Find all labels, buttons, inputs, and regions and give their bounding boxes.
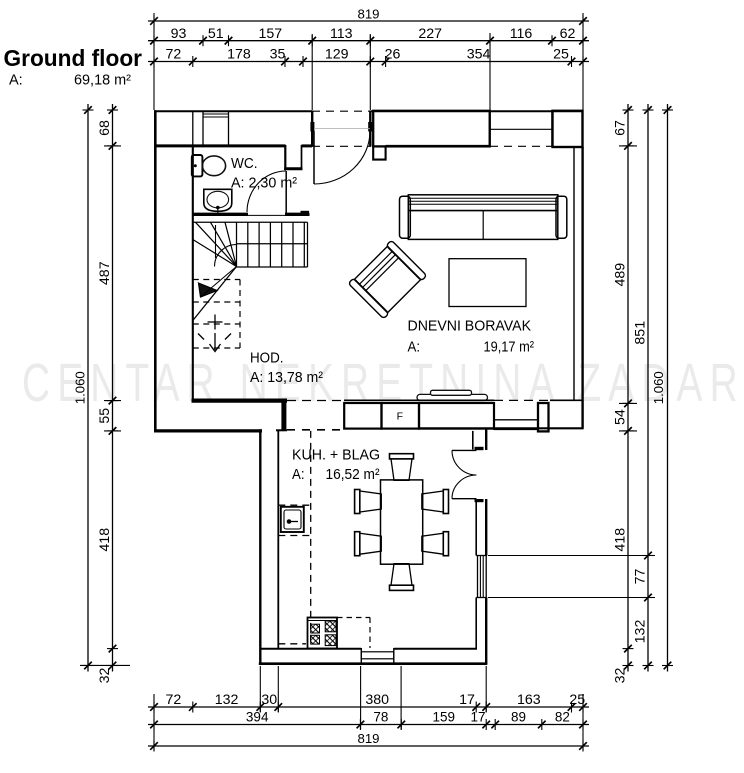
svg-text:67: 67 <box>613 120 629 136</box>
svg-text:KUH. + BLAG: KUH. + BLAG <box>292 447 380 464</box>
svg-text:DNEVNI BORAVAK: DNEVNI BORAVAK <box>408 318 532 335</box>
svg-text:819: 819 <box>357 731 379 746</box>
svg-text:77: 77 <box>633 569 649 585</box>
svg-text:WC.: WC. <box>231 155 258 172</box>
svg-text:17: 17 <box>470 710 485 725</box>
svg-text:1.060: 1.060 <box>73 371 88 404</box>
svg-text:72: 72 <box>166 47 182 63</box>
svg-text:32: 32 <box>613 668 629 684</box>
svg-text:418: 418 <box>613 528 629 552</box>
svg-text:487: 487 <box>97 261 113 285</box>
svg-text:93: 93 <box>171 26 187 42</box>
svg-text:30: 30 <box>261 692 277 708</box>
svg-text:55: 55 <box>97 408 113 424</box>
svg-text:17: 17 <box>459 692 475 708</box>
svg-text:129: 129 <box>325 47 349 63</box>
svg-text:157: 157 <box>259 26 283 42</box>
svg-text:A:: A: <box>9 73 23 89</box>
svg-text:89: 89 <box>511 710 526 725</box>
svg-text:35: 35 <box>270 47 286 63</box>
svg-text:A: 2,30 m²: A: 2,30 m² <box>231 175 297 192</box>
svg-text:16,52 m²: 16,52 m² <box>326 466 380 483</box>
svg-text:1.060: 1.060 <box>651 371 666 404</box>
svg-text:418: 418 <box>97 528 113 552</box>
svg-text:A:: A: <box>408 338 421 355</box>
svg-text:A:: A: <box>292 466 305 483</box>
svg-text:113: 113 <box>330 26 353 42</box>
svg-text:51: 51 <box>208 26 224 42</box>
svg-text:227: 227 <box>418 26 442 42</box>
svg-text:Ground floor: Ground floor <box>4 45 143 71</box>
svg-text:69,18 m²: 69,18 m² <box>74 73 131 89</box>
svg-text:851: 851 <box>633 321 649 345</box>
svg-text:32: 32 <box>97 668 113 684</box>
svg-text:116: 116 <box>510 26 533 42</box>
svg-text:819: 819 <box>357 6 379 21</box>
svg-text:HOD.: HOD. <box>250 350 284 367</box>
svg-text:54: 54 <box>613 409 629 425</box>
svg-text:19,17 m²: 19,17 m² <box>484 338 535 355</box>
svg-text:132: 132 <box>633 620 649 644</box>
svg-text:178: 178 <box>227 47 251 63</box>
svg-text:72: 72 <box>166 692 182 708</box>
svg-text:354: 354 <box>467 47 491 63</box>
svg-text:159: 159 <box>432 710 455 725</box>
svg-text:A: 13,78 m²: A: 13,78 m² <box>250 369 323 386</box>
svg-text:163: 163 <box>517 692 541 708</box>
svg-text:25: 25 <box>553 47 569 63</box>
svg-text:78: 78 <box>373 710 388 725</box>
svg-text:394: 394 <box>246 710 269 725</box>
svg-text:82: 82 <box>555 710 570 725</box>
svg-text:62: 62 <box>560 26 576 42</box>
svg-text:68: 68 <box>97 120 113 136</box>
svg-text:489: 489 <box>613 263 629 287</box>
svg-text:380: 380 <box>365 692 389 708</box>
svg-text:F: F <box>397 411 403 423</box>
svg-text:26: 26 <box>385 47 401 63</box>
svg-text:132: 132 <box>215 692 239 708</box>
